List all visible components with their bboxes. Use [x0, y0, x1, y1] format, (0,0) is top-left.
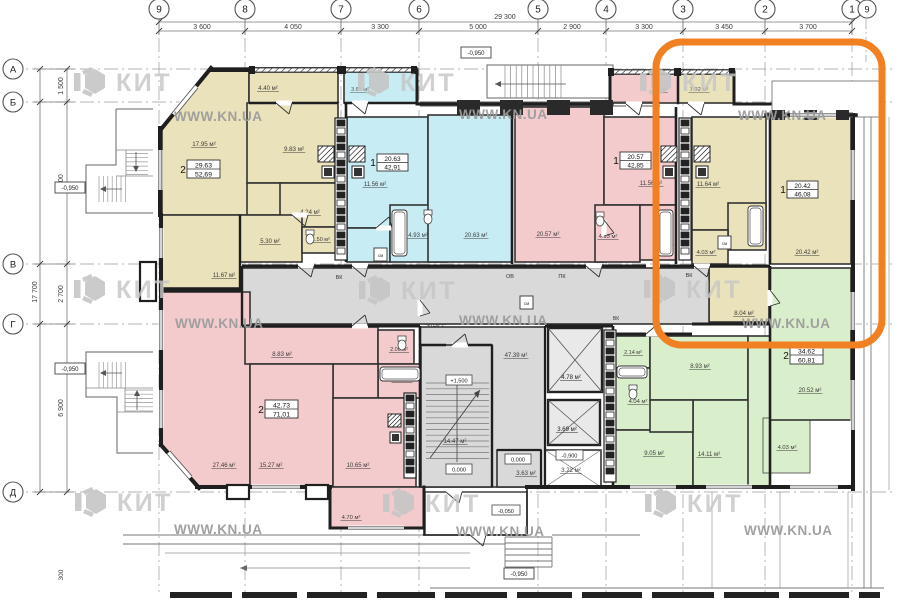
svg-text:WWW.KN.UA: WWW.KN.UA	[744, 523, 832, 538]
svg-text:Б: Б	[10, 98, 16, 109]
svg-text:1: 1	[613, 156, 619, 167]
svg-text:3.63 м²: 3.63 м²	[516, 471, 535, 477]
svg-text:1: 1	[370, 158, 376, 169]
svg-text:4.78 м²: 4.78 м²	[561, 375, 580, 381]
svg-text:42.73: 42.73	[273, 403, 290, 410]
svg-text:20.63: 20.63	[384, 156, 401, 163]
svg-text:КИТ: КИТ	[116, 276, 172, 304]
svg-text:А: А	[10, 65, 17, 76]
svg-text:9: 9	[156, 5, 162, 16]
svg-text:КИТ: КИТ	[116, 69, 172, 97]
svg-text:WWW.KN.UA: WWW.KN.UA	[459, 107, 547, 122]
svg-text:2: 2	[783, 351, 789, 362]
svg-text:+1,500: +1,500	[450, 379, 467, 385]
svg-text:3 450: 3 450	[715, 24, 733, 31]
svg-text:6 900: 6 900	[58, 399, 65, 417]
svg-text:17 700: 17 700	[32, 281, 39, 303]
svg-text:3.69 м²: 3.69 м²	[557, 427, 576, 433]
svg-text:20.42 м²: 20.42 м²	[796, 250, 819, 256]
svg-text:52,69: 52,69	[195, 172, 212, 179]
svg-text:-0,950: -0,950	[61, 186, 79, 192]
svg-text:14.47 м²: 14.47 м²	[444, 439, 467, 445]
svg-text:КИТ: КИТ	[400, 69, 456, 97]
svg-text:11.64 м²: 11.64 м²	[697, 182, 719, 188]
svg-text:11.56 м²: 11.56 м²	[364, 182, 386, 188]
svg-text:6: 6	[416, 5, 422, 16]
svg-text:3 300: 3 300	[635, 24, 653, 31]
svg-text:0,000: 0,000	[511, 458, 525, 464]
svg-text:0,000: 0,000	[452, 468, 466, 474]
svg-text:4.03 м²: 4.03 м²	[778, 445, 797, 451]
svg-text:20.42: 20.42	[794, 183, 811, 190]
svg-text:3.22 м²: 3.22 м²	[561, 468, 580, 474]
svg-text:15.27 м²: 15.27 м²	[260, 463, 283, 469]
svg-text:4 050: 4 050	[284, 24, 302, 31]
svg-text:9.05 м²: 9.05 м²	[644, 451, 663, 457]
svg-text:300: 300	[58, 569, 65, 580]
svg-text:8.93 м²: 8.93 м²	[690, 364, 709, 370]
svg-text:2: 2	[258, 405, 264, 416]
svg-text:В: В	[10, 260, 16, 271]
svg-text:3 300: 3 300	[371, 24, 389, 31]
svg-text:5 000: 5 000	[469, 24, 487, 31]
svg-text:WWW.KN.UA: WWW.KN.UA	[738, 108, 826, 123]
svg-text:5.30 м²: 5.30 м²	[260, 239, 279, 245]
svg-text:см: см	[524, 301, 529, 306]
svg-text:-0,950: -0,950	[510, 572, 528, 578]
svg-text:ПК: ПК	[558, 274, 566, 280]
svg-text:WWW.KN.UA: WWW.KN.UA	[742, 316, 830, 331]
svg-text:КИТ: КИТ	[686, 276, 742, 304]
svg-text:29 300: 29 300	[494, 14, 516, 21]
svg-text:2: 2	[180, 165, 186, 176]
svg-text:47.39 м²: 47.39 м²	[505, 353, 528, 359]
svg-text:20.63 м²: 20.63 м²	[465, 233, 488, 239]
svg-text:-0,950: -0,950	[61, 367, 79, 373]
svg-text:20.57: 20.57	[627, 154, 644, 161]
svg-text:5: 5	[535, 5, 541, 16]
svg-text:14.11 м²: 14.11 м²	[698, 452, 720, 458]
svg-text:ВК: ВК	[613, 316, 619, 322]
svg-text:-0,050: -0,050	[498, 509, 514, 515]
svg-text:WWW.KN.UA: WWW.KN.UA	[459, 313, 547, 328]
svg-text:11.67 м²: 11.67 м²	[213, 273, 235, 279]
svg-text:КИТ: КИТ	[682, 69, 738, 97]
svg-text:WWW.KN.UA: WWW.KN.UA	[174, 109, 262, 124]
svg-text:см: см	[378, 253, 383, 258]
svg-text:60,81: 60,81	[798, 358, 815, 365]
svg-text:20.52 м²: 20.52 м²	[799, 388, 822, 394]
svg-text:WWW.KN.UA: WWW.KN.UA	[456, 524, 544, 539]
svg-text:WWW.KN.UA: WWW.KN.UA	[174, 522, 262, 537]
svg-text:2 700: 2 700	[58, 285, 65, 303]
svg-text:4.04 м²: 4.04 м²	[629, 399, 648, 405]
svg-text:27.46 м²: 27.46 м²	[213, 463, 236, 469]
svg-text:2: 2	[762, 5, 768, 16]
svg-text:8: 8	[242, 5, 248, 16]
svg-text:КИТ: КИТ	[117, 489, 173, 517]
svg-text:9: 9	[864, 5, 869, 15]
svg-text:ВК: ВК	[336, 275, 344, 281]
svg-text:2 900: 2 900	[563, 24, 581, 31]
svg-text:4.70 м²: 4.70 м²	[342, 515, 361, 521]
svg-text:4.03 м²: 4.03 м²	[697, 250, 716, 256]
svg-text:3 700: 3 700	[799, 24, 817, 31]
svg-text:7: 7	[338, 5, 344, 16]
svg-text:8.83 м²: 8.83 м²	[272, 352, 291, 358]
svg-text:3: 3	[680, 5, 686, 16]
svg-text:42,85: 42,85	[627, 163, 644, 170]
svg-text:Д: Д	[10, 488, 17, 499]
svg-text:29.63: 29.63	[195, 163, 212, 170]
svg-text:71,01: 71,01	[273, 412, 290, 419]
svg-text:17.95 м²: 17.95 м²	[192, 141, 216, 148]
svg-text:см: см	[722, 241, 727, 246]
svg-text:3 600: 3 600	[193, 24, 211, 31]
svg-text:1 500: 1 500	[58, 77, 65, 95]
svg-text:9.83 м²: 9.83 м²	[284, 146, 304, 153]
svg-text:КИТ: КИТ	[687, 490, 743, 518]
svg-text:WWW.KN.UA: WWW.KN.UA	[175, 316, 263, 331]
svg-text:1.50 м²: 1.50 м²	[312, 237, 330, 243]
svg-text:КИТ: КИТ	[425, 490, 481, 518]
svg-text:КИТ: КИТ	[401, 277, 457, 305]
svg-text:20.57 м²: 20.57 м²	[537, 232, 560, 238]
svg-text:ОВ: ОВ	[506, 274, 514, 280]
svg-text:46,08: 46,08	[794, 192, 811, 199]
svg-text:1: 1	[849, 5, 855, 16]
svg-text:4.40 м²: 4.40 м²	[258, 86, 277, 92]
svg-text:Г: Г	[10, 320, 15, 331]
svg-text:-0,950: -0,950	[467, 51, 485, 57]
svg-text:42,91: 42,91	[384, 165, 401, 172]
svg-text:34.62: 34.62	[798, 349, 815, 356]
svg-text:4.93 м²: 4.93 м²	[408, 233, 427, 239]
svg-text:1: 1	[780, 185, 786, 196]
svg-text:10.65 м²: 10.65 м²	[347, 463, 370, 469]
svg-text:2.14 м²: 2.14 м²	[624, 350, 642, 356]
svg-text:4: 4	[603, 5, 609, 16]
svg-text:-0,900: -0,900	[562, 454, 578, 460]
